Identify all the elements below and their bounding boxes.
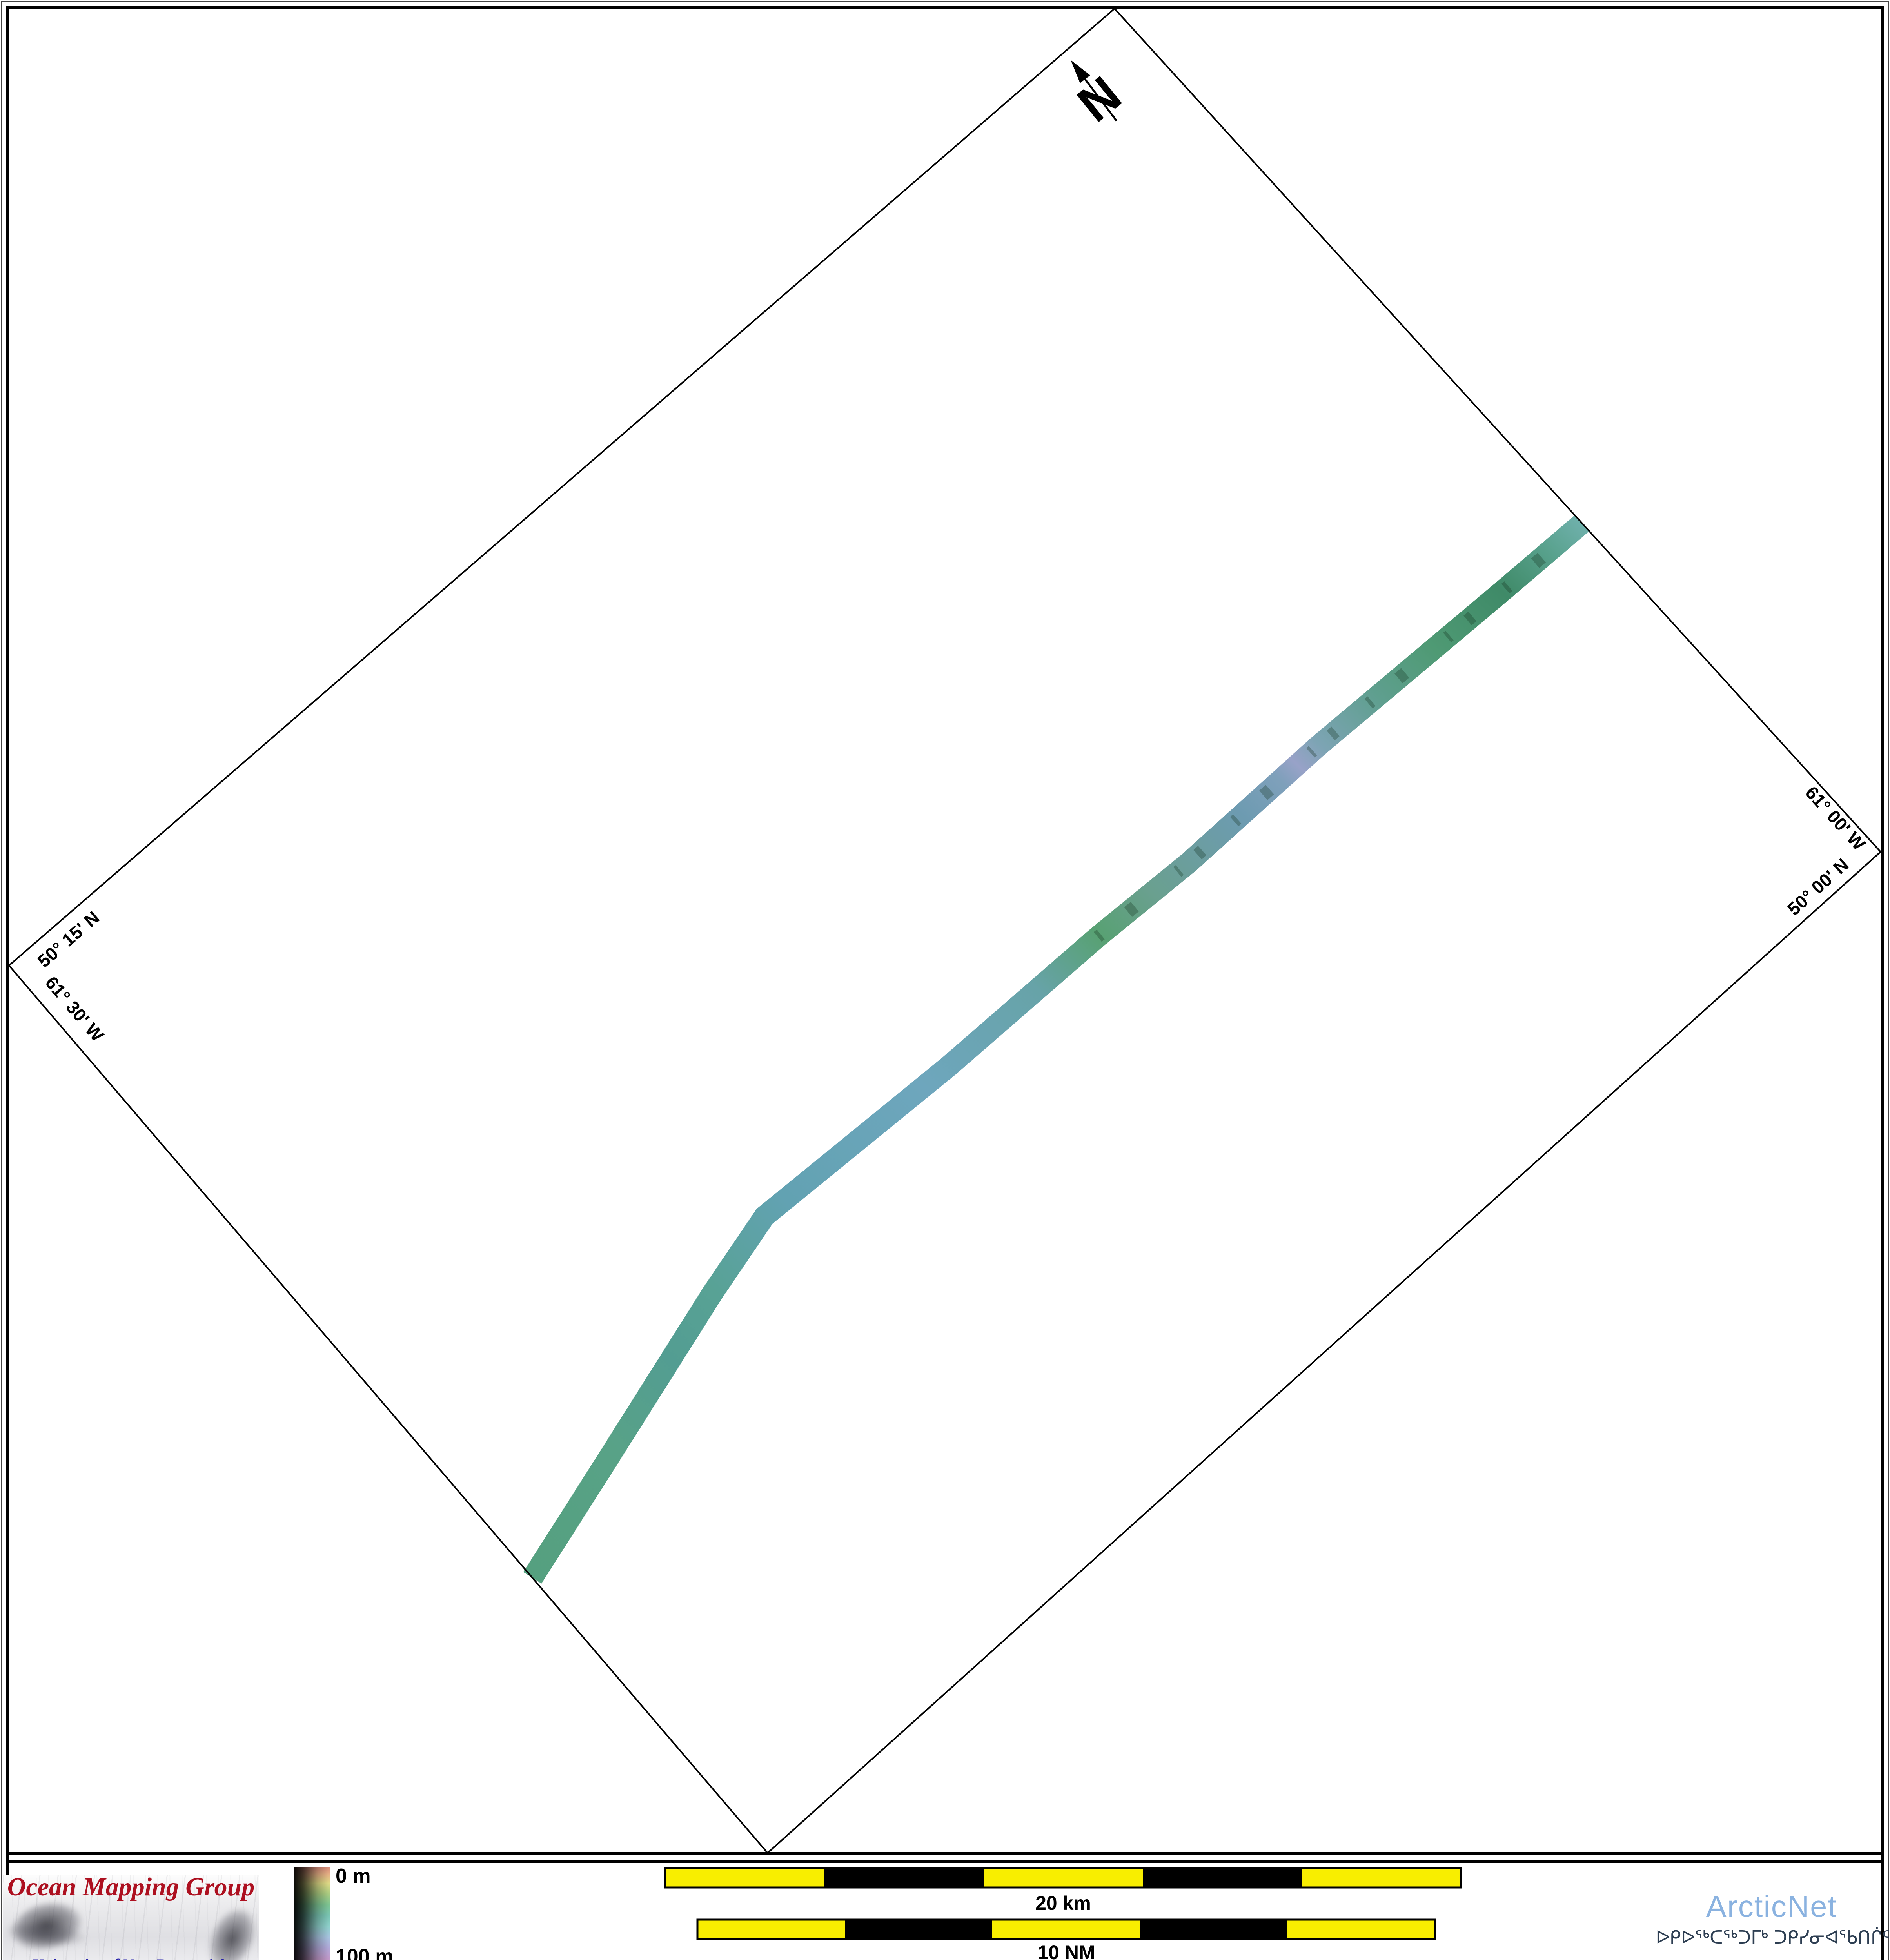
colorbar-shading — [294, 1867, 330, 1960]
omg-sonar-image-right — [191, 1898, 259, 1960]
scalebar-km-label: 20 km — [1035, 1892, 1091, 1914]
arcticnet-wordmark: ArcticNet — [1706, 1889, 1837, 1924]
arcticnet-inuktitut-tagline: ᐅᑭᐅᖅᑕᖅᑐᒥᒃ ᑐᑭᓯᓂᐊᖃᑎᒌᑦ — [1656, 1927, 1890, 1948]
omg-logo: Ocean Mapping Group University of New Br… — [3, 1875, 259, 1960]
scalebar-km-seg5 — [1302, 1868, 1461, 1887]
omg-subtitle: University of New Brunswick — [3, 1955, 259, 1960]
scalebar-nm-seg4 — [1140, 1920, 1287, 1939]
scalebar-km-seg4 — [1143, 1868, 1302, 1887]
scalebar-nm-seg1 — [697, 1920, 845, 1939]
scalebar-km-seg2 — [824, 1868, 984, 1887]
omg-title: Ocean Mapping Group — [3, 1875, 259, 1902]
scalebar-nm-label: 10 NM — [1037, 1942, 1095, 1960]
map-neatline-fill — [9, 9, 1881, 1853]
page: { "map": { "north_label": "N", "corner_l… — [0, 0, 1890, 1960]
scalebar-km-seg1 — [665, 1868, 824, 1887]
colorbar-bottom-label: 100 m — [336, 1945, 393, 1960]
map-canvas: N 50° 15' N 61° 30' W 61° 00' W 50° 00' … — [0, 0, 1890, 1960]
scalebar-nm-seg3 — [992, 1920, 1140, 1939]
depth-colorbar: 0 m 100 m — [294, 1865, 393, 1960]
arcticnet-logo: ArcticNet ᐅᑭᐅᖅᑕᖅᑐᒥᒃ ᑐᑭᓯᓂᐊᖃᑎᒌᑦ — [1656, 1889, 1890, 1948]
scalebar-km: 20 km — [665, 1868, 1461, 1914]
scalebar-nm: 10 NM — [697, 1920, 1435, 1960]
scalebar-km-seg3 — [984, 1868, 1143, 1887]
scalebar-nm-seg5 — [1287, 1920, 1435, 1939]
colorbar-top-label: 0 m — [336, 1865, 371, 1887]
scalebar-nm-seg2 — [845, 1920, 992, 1939]
